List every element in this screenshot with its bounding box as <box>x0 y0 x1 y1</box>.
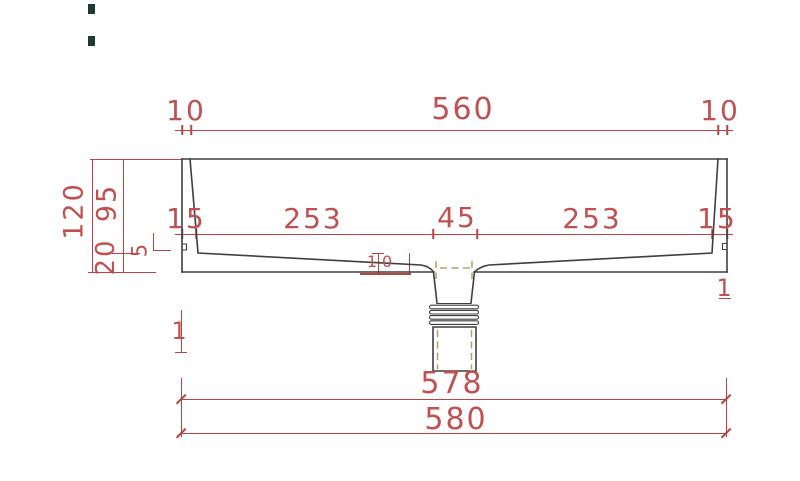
dim-text-basin-right: 253 <box>562 205 621 233</box>
dim-text-basin-left: 253 <box>283 205 342 233</box>
thread-ring <box>430 310 479 314</box>
thread-ring <box>430 305 479 309</box>
dim-text-edge-right: 1 <box>716 276 731 300</box>
artifact-mark <box>88 4 95 14</box>
dim-text-rim-width: 560 <box>431 95 494 125</box>
drain-pipe <box>433 327 476 371</box>
dim-line-95-20 <box>123 159 124 272</box>
tick-edge-left <box>175 352 187 353</box>
dim-tick <box>432 229 434 239</box>
dim-text-wall-right: 15 <box>697 205 737 233</box>
thread-ring <box>430 321 479 325</box>
dim-text-step: 5 <box>130 243 151 257</box>
cad-drawing-canvas: 10 560 10 15 253 45 253 15 120 95 20 5 1… <box>0 0 800 481</box>
dim-text-base-thickness: 20 <box>93 238 119 275</box>
ext-line-rim-left <box>90 159 182 160</box>
ext-line-bottom-l <box>181 378 182 437</box>
dim-line-drain-b <box>409 253 410 274</box>
ext-line-bottom-r <box>726 378 727 437</box>
leader-step-v <box>153 233 154 250</box>
dim-text-drain-thickness: 10 <box>367 254 397 270</box>
dim-text-overall-width: 580 <box>424 405 487 435</box>
notch-left <box>182 244 187 250</box>
artifact-mark <box>88 36 95 46</box>
dim-text-wall-left: 15 <box>166 205 206 233</box>
dim-text-inner-width: 578 <box>420 369 483 399</box>
thread-ring <box>430 316 479 320</box>
dim-text-top-right: 10 <box>700 97 740 125</box>
dim-text-top-left: 10 <box>166 97 206 125</box>
dim-text-drain-width: 45 <box>437 204 477 232</box>
ext-line-drain <box>360 273 411 274</box>
dim-text-edge-left: 1 <box>171 319 186 343</box>
dim-line-top <box>175 130 733 131</box>
dim-text-total-height: 120 <box>61 182 88 240</box>
leader-step-h <box>153 250 171 251</box>
notch-right <box>723 244 728 250</box>
dim-text-bowl-depth: 95 <box>94 184 121 222</box>
